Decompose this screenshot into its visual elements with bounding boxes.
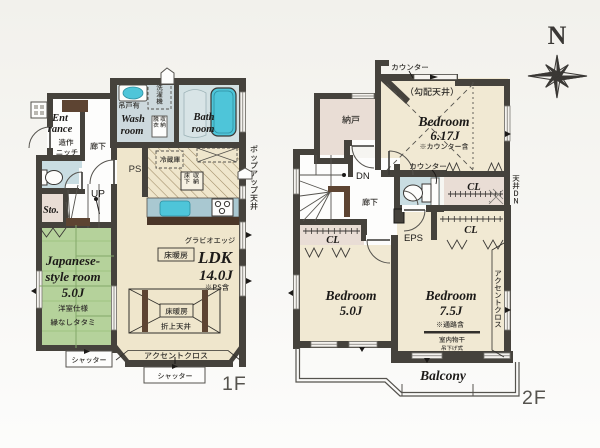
svg-text:Bath: Bath: [192, 112, 214, 123]
svg-text:Bedroom: Bedroom: [424, 288, 476, 303]
svg-text:Sto.: Sto.: [43, 205, 59, 216]
svg-text:UP: UP: [91, 189, 105, 200]
svg-text:Wash: Wash: [121, 114, 145, 125]
svg-text:Ent: Ent: [51, 113, 69, 124]
svg-text:CL: CL: [464, 225, 477, 236]
svg-text:N: N: [548, 21, 567, 50]
svg-text:PS: PS: [129, 164, 142, 175]
svg-text:1F: 1F: [222, 373, 247, 395]
svg-text:CL: CL: [326, 235, 339, 246]
svg-text:6.17J: 6.17J: [430, 128, 460, 143]
svg-text:CL: CL: [467, 182, 480, 193]
svg-text:Balcony: Balcony: [419, 368, 467, 383]
svg-text:LDK: LDK: [197, 248, 234, 267]
svg-text:5.0J: 5.0J: [340, 303, 363, 318]
svg-text:style room: style room: [44, 269, 100, 284]
svg-text:Japanese-: Japanese-: [45, 253, 100, 268]
svg-text:room: room: [192, 124, 215, 135]
svg-text:2F: 2F: [522, 387, 547, 409]
svg-text:rance: rance: [48, 124, 73, 135]
svg-text:room: room: [121, 126, 144, 137]
svg-text:Bedroom: Bedroom: [324, 288, 376, 303]
svg-text:14.0J: 14.0J: [199, 268, 233, 284]
svg-text:EPS: EPS: [404, 233, 423, 244]
svg-text:DN: DN: [356, 171, 370, 182]
svg-text:7.5J: 7.5J: [440, 303, 463, 318]
svg-text:Bedroom: Bedroom: [417, 114, 469, 129]
svg-text:5.0J: 5.0J: [62, 285, 85, 300]
